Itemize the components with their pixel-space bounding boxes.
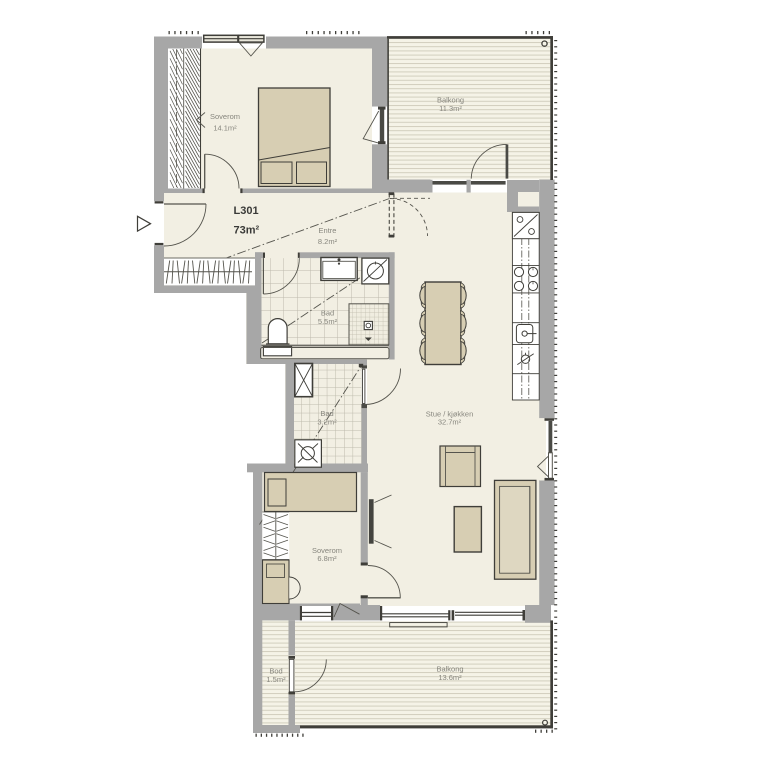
svg-text:8.2m²: 8.2m²: [318, 237, 338, 246]
svg-text:1.5m²: 1.5m²: [266, 675, 286, 684]
svg-text:5.5m²: 5.5m²: [318, 317, 338, 326]
svg-text:Entre: Entre: [319, 226, 337, 235]
svg-text:73m²: 73m²: [234, 224, 260, 236]
svg-text:11.3m²: 11.3m²: [439, 104, 462, 113]
svg-text:3.2m²: 3.2m²: [317, 417, 337, 426]
svg-text:13.6m²: 13.6m²: [438, 673, 462, 682]
svg-text:6.8m²: 6.8m²: [317, 554, 337, 563]
svg-text:Balkong: Balkong: [437, 95, 464, 104]
svg-text:L301: L301: [234, 205, 259, 217]
svg-text:32.7m²: 32.7m²: [438, 418, 462, 427]
svg-text:14.1m²: 14.1m²: [213, 123, 237, 132]
svg-text:Soverom: Soverom: [210, 112, 240, 121]
